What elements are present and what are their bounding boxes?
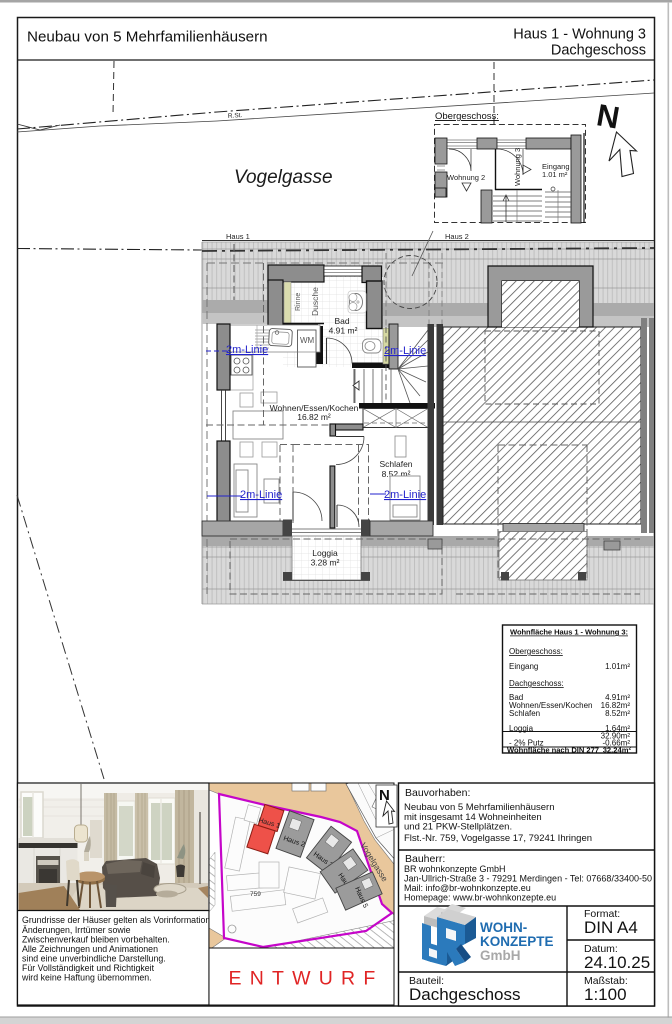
svg-text:Vogelgasse: Vogelgasse	[234, 167, 333, 188]
svg-text:Wohnfläche nach DIN 277: Wohnfläche nach DIN 277	[507, 745, 599, 754]
svg-text:Schlafen: Schlafen	[509, 709, 540, 718]
svg-text:und 21 PKW-Stellplätzen.: und 21 PKW-Stellplätzen.	[404, 822, 512, 833]
svg-text:1.01 m²: 1.01 m²	[542, 170, 568, 179]
svg-text:Haus 1: Haus 1	[226, 232, 250, 241]
svg-text:Schlafen: Schlafen	[379, 459, 412, 469]
svg-text:BR wohnkonzepte GmbH: BR wohnkonzepte GmbH	[404, 864, 506, 874]
svg-text:Haus 1 - Wohnung 3: Haus 1 - Wohnung 3	[513, 27, 646, 43]
svg-text:8.52m²: 8.52m²	[605, 709, 630, 718]
svg-text:Dachgeschoss: Dachgeschoss	[409, 985, 521, 1004]
svg-text:Alle Zeichnungen und Animation: Alle Zeichnungen und Animationen	[22, 944, 158, 954]
svg-text:Wohnfläche Haus 1 - Wohnung 3:: Wohnfläche Haus 1 - Wohnung 3:	[510, 628, 628, 637]
svg-text:R.St.: R.St.	[228, 112, 243, 120]
svg-text:Loggia: Loggia	[312, 548, 338, 558]
svg-text:759: 759	[250, 891, 261, 898]
svg-text:DIN A4: DIN A4	[584, 918, 638, 937]
svg-text:Wohnung 2: Wohnung 2	[447, 173, 485, 182]
svg-text:2m-Linie: 2m-Linie	[240, 489, 282, 501]
svg-text:3.28 m²: 3.28 m²	[311, 558, 340, 568]
svg-text:ENTWURF: ENTWURF	[229, 968, 384, 990]
svg-text:Rinne: Rinne	[295, 293, 302, 311]
svg-text:Haus 2: Haus 2	[445, 232, 469, 241]
svg-text:Obergeschoss:: Obergeschoss:	[435, 111, 499, 122]
svg-text:Zwischenverkauf bleiben vorbeh: Zwischenverkauf bleiben vorbehalten.	[22, 935, 170, 945]
svg-text:1.01m²: 1.01m²	[605, 662, 630, 671]
svg-text:Dusche: Dusche	[310, 287, 320, 316]
svg-text:wird keine Haftung übernommen.: wird keine Haftung übernommen.	[21, 973, 152, 983]
svg-text:Für Vollständigkeit und Richti: Für Vollständigkeit und Richtigkeit	[22, 963, 155, 973]
svg-text:Eingang: Eingang	[509, 662, 538, 671]
svg-text:Grundrisse der Häuser gelten a: Grundrisse der Häuser gelten als Vorinfo…	[22, 915, 213, 925]
svg-text:Flst.-Nr. 759, Vogelgasse 17,: Flst.-Nr. 759, Vogelgasse 17, 79241 Ihri…	[404, 833, 592, 844]
svg-text:16.82 m²: 16.82 m²	[297, 412, 331, 422]
svg-text:Änderungen, Irrtümer sowie: Änderungen, Irrtümer sowie	[22, 925, 131, 935]
svg-text:Bauvorhaben:: Bauvorhaben:	[405, 787, 470, 799]
svg-text:32.24m²: 32.24m²	[603, 745, 632, 754]
svg-text:N: N	[379, 787, 390, 804]
svg-text:Wohnung 3: Wohnung 3	[513, 148, 522, 186]
svg-text:Neubau von 5 Mehrfamilienhäuse: Neubau von 5 Mehrfamilienhäusern	[27, 29, 268, 46]
svg-text:Homepage: www.br-wohnkonzepte.: Homepage: www.br-wohnkonzepte.eu	[404, 893, 556, 903]
svg-text:Bad: Bad	[334, 316, 349, 326]
svg-text:24.10.25: 24.10.25	[584, 953, 650, 972]
svg-text:2m-Linie: 2m-Linie	[384, 489, 426, 501]
svg-text:WM: WM	[300, 336, 315, 345]
svg-text:GmbH: GmbH	[480, 948, 521, 963]
svg-text:4.91 m²: 4.91 m²	[329, 326, 358, 336]
svg-text:2m-Linie: 2m-Linie	[384, 345, 426, 357]
svg-text:sind eine unverbindliche Darst: sind eine unverbindliche Darstellung.	[22, 954, 166, 964]
svg-text:Dachgeschoss: Dachgeschoss	[551, 43, 646, 59]
svg-text:WOHN-: WOHN-	[480, 920, 527, 935]
svg-text:1:100: 1:100	[584, 985, 627, 1004]
svg-text:Obergeschoss:: Obergeschoss:	[509, 647, 563, 656]
svg-text:Mail: info@br-wohnkonzepte.eu: Mail: info@br-wohnkonzepte.eu	[404, 883, 531, 893]
svg-text:Dachgeschoss:: Dachgeschoss:	[509, 679, 564, 688]
svg-text:2m-Linie: 2m-Linie	[226, 344, 268, 356]
svg-text:KONZEPTE: KONZEPTE	[480, 934, 554, 949]
svg-text:Jan-Ullrich-Straße 3 - 79291 M: Jan-Ullrich-Straße 3 - 79291 Merdingen -…	[404, 874, 652, 884]
